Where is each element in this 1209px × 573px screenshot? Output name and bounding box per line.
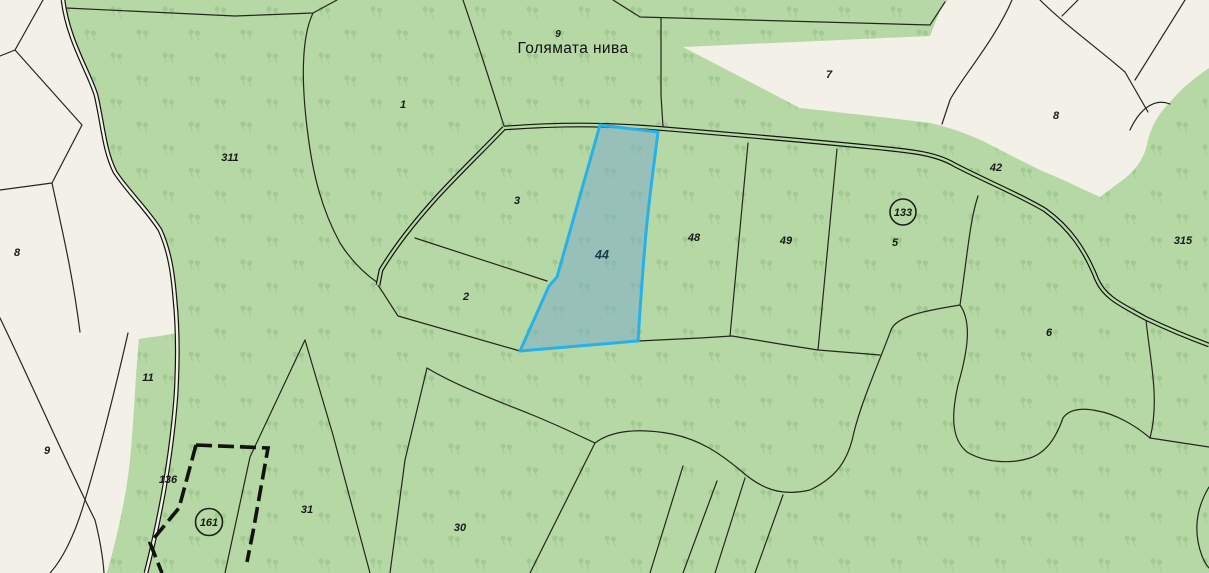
parcel-label-42: 42 <box>989 162 1002 174</box>
parcel-label-5: 5 <box>892 237 899 249</box>
parcel-label-8-left: 8 <box>14 247 21 259</box>
parcel-label-8-topright: 8 <box>1053 110 1060 122</box>
parcel-label-44: 44 <box>594 248 609 262</box>
parcel-label-31: 31 <box>301 504 313 516</box>
parcel-label-315: 315 <box>1174 235 1193 247</box>
parcel-label-30: 30 <box>454 522 467 534</box>
parcel-label-48: 48 <box>687 232 701 244</box>
region-name: Голямата нива <box>518 40 629 57</box>
parcel-label-49: 49 <box>779 235 793 247</box>
region-number: 9 <box>555 29 561 40</box>
parcel-label-161: 161 <box>200 517 218 529</box>
parcel-label-2: 2 <box>462 291 469 303</box>
map-canvas[interactable]: 9 Голямата нива 311 1 7 8 42 133 5 315 3… <box>0 0 1209 573</box>
parcel-label-133: 133 <box>894 207 912 219</box>
cadastral-map: 9 Голямата нива 311 1 7 8 42 133 5 315 3… <box>0 0 1209 573</box>
parcel-label-9-left: 9 <box>44 445 51 457</box>
parcel-label-3: 3 <box>514 195 520 207</box>
parcel-label-6: 6 <box>1046 327 1053 339</box>
parcel-label-311: 311 <box>221 152 239 164</box>
parcel-label-7: 7 <box>826 69 833 81</box>
parcel-label-1: 1 <box>400 99 406 111</box>
parcel-label-11: 11 <box>142 372 153 384</box>
parcel-label-136: 136 <box>159 474 178 486</box>
